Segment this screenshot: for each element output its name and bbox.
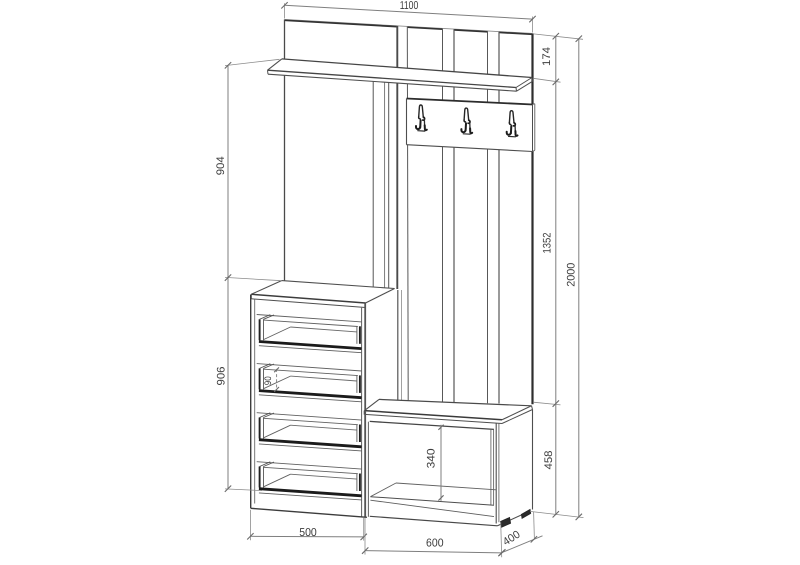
- svg-text:1100: 1100: [400, 0, 419, 12]
- svg-text:174: 174: [541, 47, 553, 66]
- svg-text:90: 90: [263, 376, 274, 385]
- svg-text:1352: 1352: [541, 233, 553, 254]
- svg-text:340: 340: [426, 448, 438, 468]
- svg-text:458: 458: [543, 451, 555, 470]
- svg-text:906: 906: [215, 367, 227, 386]
- svg-text:2000: 2000: [565, 263, 577, 287]
- svg-text:600: 600: [426, 538, 444, 550]
- svg-text:500: 500: [299, 527, 317, 539]
- svg-text:904: 904: [215, 156, 227, 175]
